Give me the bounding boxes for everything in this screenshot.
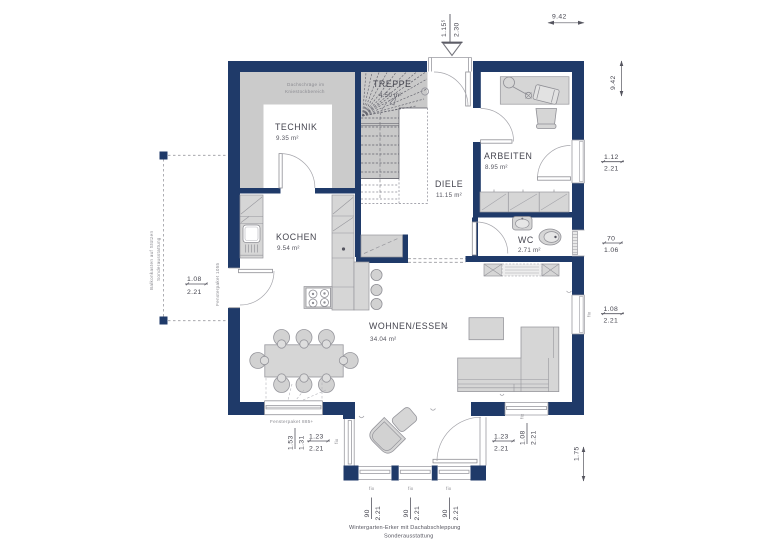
svg-text:TREPPE: TREPPE	[373, 79, 412, 89]
svg-text:1.23: 1.23	[309, 434, 324, 441]
svg-text:Fensterpaket 1055: Fensterpaket 1055	[215, 262, 220, 306]
svg-text:2.71 m²: 2.71 m²	[518, 247, 541, 254]
svg-text:fix: fix	[520, 413, 525, 419]
svg-text:fix: fix	[408, 486, 414, 491]
svg-text:DIELE: DIELE	[435, 179, 463, 189]
svg-text:Sonderausstattung: Sonderausstattung	[384, 534, 434, 540]
svg-text:9.35 m²: 9.35 m²	[276, 135, 299, 142]
svg-text:2.21: 2.21	[187, 289, 202, 296]
svg-text:2.30: 2.30	[454, 22, 461, 37]
svg-text:9.54 m²: 9.54 m²	[277, 245, 300, 252]
svg-text:fix: fix	[334, 438, 339, 444]
svg-text:Wintergarten-Erker mit Dachabs: Wintergarten-Erker mit Dachabschleppung	[349, 525, 461, 531]
svg-text:90: 90	[442, 509, 449, 517]
svg-text:1.06: 1.06	[604, 247, 619, 254]
svg-text:WOHNEN/ESSEN: WOHNEN/ESSEN	[369, 321, 448, 331]
svg-text:9.42: 9.42	[552, 14, 567, 21]
svg-text:TECHNIK: TECHNIK	[275, 122, 317, 132]
svg-text:1.12: 1.12	[604, 154, 619, 161]
svg-text:2.21: 2.21	[604, 166, 619, 173]
svg-text:90: 90	[403, 509, 410, 517]
svg-text:1.08: 1.08	[187, 276, 202, 283]
svg-text:2.21: 2.21	[494, 446, 509, 453]
svg-text:fix: fix	[446, 486, 452, 491]
svg-text:11.15 m²: 11.15 m²	[436, 192, 462, 199]
svg-text:1.23: 1.23	[494, 434, 509, 441]
svg-text:Dachschräge im: Dachschräge im	[287, 82, 324, 87]
svg-text:2.21: 2.21	[309, 446, 324, 453]
svg-text:1.31: 1.31	[299, 435, 306, 450]
svg-text:1.08: 1.08	[520, 430, 527, 445]
svg-text:1.08: 1.08	[604, 306, 619, 313]
svg-text:8.95 m²: 8.95 m²	[485, 164, 508, 171]
svg-text:1.75: 1.75	[574, 446, 581, 461]
svg-text:fix: fix	[369, 486, 375, 491]
svg-text:2.21: 2.21	[604, 318, 619, 325]
svg-text:1.53: 1.53	[288, 435, 295, 450]
svg-text:2.21: 2.21	[414, 506, 421, 521]
svg-text:Kniestockbereich: Kniestockbereich	[285, 89, 325, 94]
svg-text:2.21: 2.21	[453, 506, 460, 521]
svg-text:Sonderausstattung: Sonderausstattung	[156, 237, 161, 281]
svg-text:90: 90	[364, 509, 371, 517]
svg-text:2.21: 2.21	[531, 430, 538, 445]
svg-text:1.15⁵: 1.15⁵	[441, 19, 448, 37]
svg-text:ARBEITEN: ARBEITEN	[484, 151, 532, 161]
svg-text:WC: WC	[518, 235, 534, 245]
svg-text:2.21: 2.21	[375, 506, 382, 521]
svg-text:fix: fix	[587, 311, 592, 317]
svg-text:9.42: 9.42	[610, 75, 617, 90]
svg-text:4.50 m²: 4.50 m²	[379, 92, 402, 99]
svg-text:70: 70	[607, 236, 615, 243]
svg-text:34.04 m²: 34.04 m²	[370, 336, 396, 343]
svg-text:Balkonkasten auf Stützen: Balkonkasten auf Stützen	[149, 231, 154, 290]
svg-text:KOCHEN: KOCHEN	[276, 232, 317, 242]
svg-text:Fensterpaket 885+: Fensterpaket 885+	[270, 419, 314, 424]
